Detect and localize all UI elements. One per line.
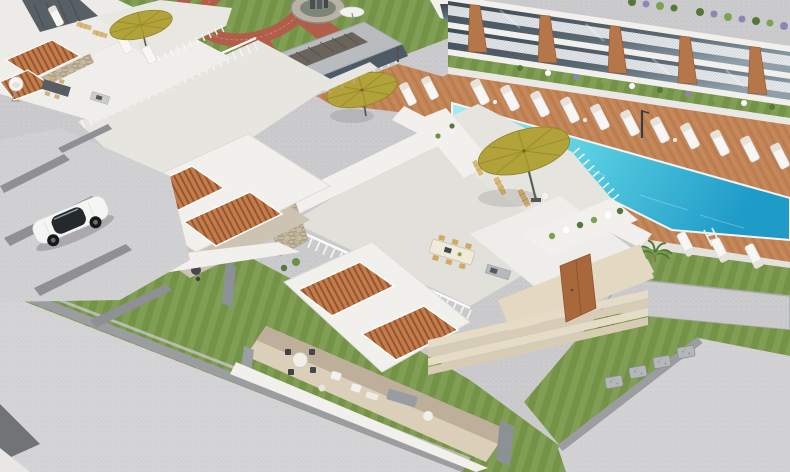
shrub <box>292 258 300 266</box>
dining-chair <box>309 349 315 355</box>
side-table <box>319 385 326 392</box>
stepping-stone <box>605 375 624 389</box>
bar-stool <box>340 85 344 89</box>
fountain-sculpture <box>310 0 315 9</box>
planter-plant <box>435 133 440 138</box>
side-table <box>493 100 497 104</box>
pouf <box>423 411 433 421</box>
door-handle <box>571 289 573 291</box>
scene-canvas <box>0 0 790 472</box>
side-table <box>673 138 677 142</box>
stepping-stone <box>677 345 696 359</box>
dining-chair <box>288 369 294 375</box>
aerial-render <box>0 0 790 472</box>
chair <box>196 277 200 281</box>
dining-chair <box>285 349 291 355</box>
bar-stool <box>352 80 356 84</box>
stepping-stone <box>629 365 648 379</box>
stone-fountain <box>291 0 345 23</box>
bar-stool <box>328 90 332 94</box>
round-dining-table <box>293 353 308 368</box>
side-table <box>541 192 549 200</box>
stepping-stone <box>653 355 672 369</box>
side-table <box>583 118 587 122</box>
shrub <box>281 265 287 271</box>
dining-chair <box>310 367 316 373</box>
planter-plant <box>449 123 454 128</box>
